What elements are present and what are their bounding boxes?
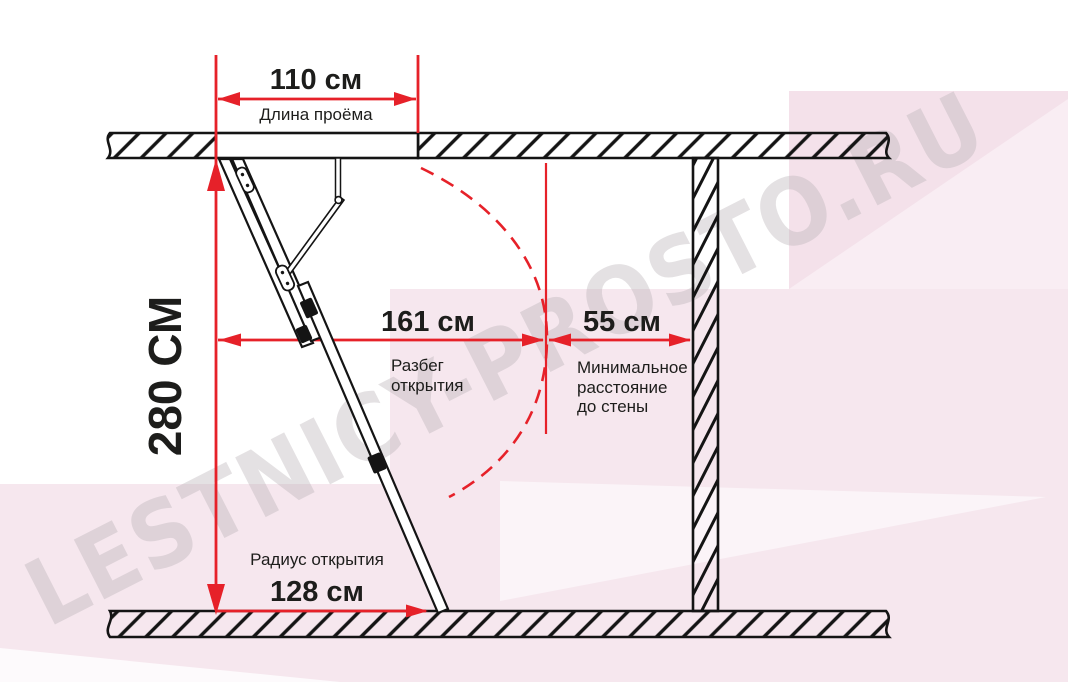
- wall-column: [693, 158, 718, 611]
- dim-value-110: 110 см: [270, 64, 362, 96]
- dim-value-280: 280 СМ: [139, 296, 191, 456]
- strut-joint: [335, 197, 342, 204]
- dim-label-radius: Радиус открытия: [250, 550, 384, 569]
- dim-value-161: 161 см: [381, 306, 475, 338]
- ladder-dimensions-diagram: LESTNICY-PROSTO.RU: [0, 0, 1068, 682]
- dim-value-128: 128 см: [270, 576, 364, 608]
- dim-label-opening: Длина проёма: [259, 105, 373, 124]
- ceiling-opening-box: [216, 133, 418, 158]
- dim-label-wall-line1: Минимальное: [577, 358, 688, 377]
- dim-label-span-line2: открытия: [391, 376, 463, 395]
- dim-label-wall-line3: до стены: [577, 397, 648, 416]
- ceiling-right-slab: [418, 133, 889, 158]
- dim-label-span-line1: Разбег: [391, 356, 444, 375]
- diagram-page: LESTNICY-PROSTO.RU: [0, 0, 1068, 682]
- ceiling-left-slab: [108, 133, 216, 158]
- ladder-pivot-rod: [336, 158, 341, 201]
- dim-label-wall-line2: расстояние: [577, 378, 668, 397]
- dim-value-55: 55 см: [583, 306, 661, 338]
- floor-slab: [108, 611, 889, 637]
